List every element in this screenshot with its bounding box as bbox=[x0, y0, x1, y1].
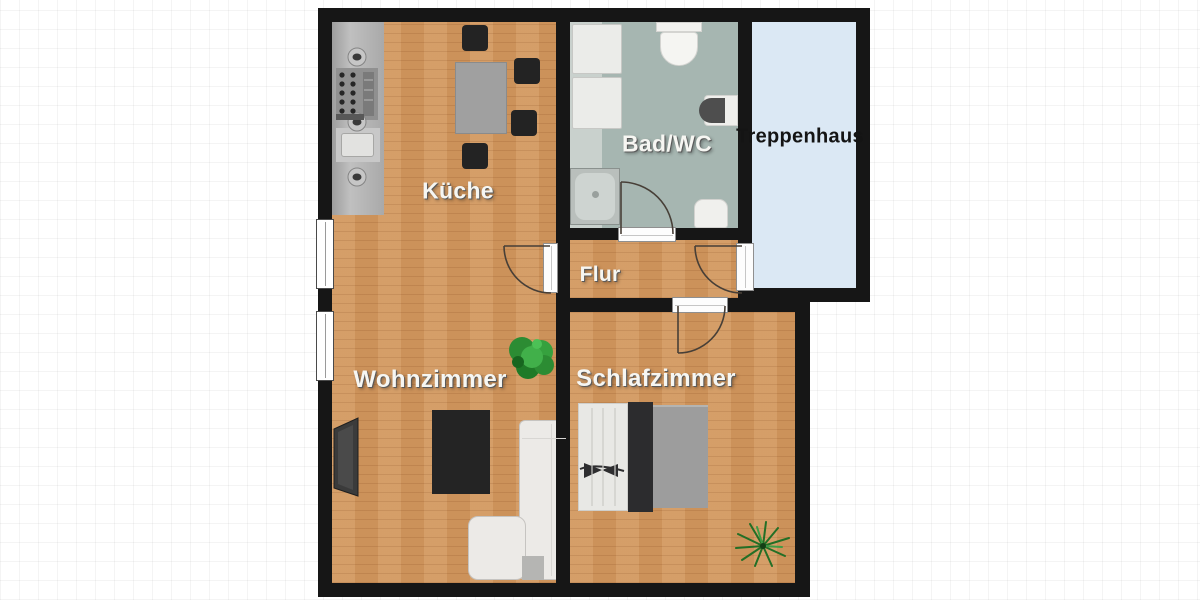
room-label-flur: Flur bbox=[580, 263, 621, 287]
room-label-schlafzimmer: Schlafzimmer bbox=[576, 365, 736, 393]
bad-wc-door bbox=[621, 182, 673, 234]
sofa-seam bbox=[551, 424, 552, 576]
room-label-bad-wc: Bad/WC bbox=[622, 131, 712, 158]
floor-plan-canvas: Küche Bad/WC Treppenhaus Flur Wohnzimmer… bbox=[0, 0, 1200, 600]
vector-overlay bbox=[0, 0, 1200, 600]
room-label-wohnzimmer: Wohnzimmer bbox=[353, 366, 506, 394]
bed-fold-lines bbox=[592, 408, 615, 506]
schlafzimmer-door bbox=[678, 306, 725, 353]
room-label-treppenhaus: Treppenhaus bbox=[736, 126, 864, 149]
stove-knobs bbox=[339, 72, 355, 113]
flur-living-door bbox=[504, 246, 551, 293]
room-label-kueche: Küche bbox=[422, 178, 494, 205]
flur-treppenhaus-door bbox=[695, 246, 742, 293]
plant-wohnzimmer bbox=[509, 337, 554, 379]
plant-schlafzimmer bbox=[736, 522, 789, 566]
tv bbox=[334, 418, 358, 496]
bed-ribbon bbox=[580, 463, 624, 478]
sofa-seam bbox=[522, 438, 566, 439]
